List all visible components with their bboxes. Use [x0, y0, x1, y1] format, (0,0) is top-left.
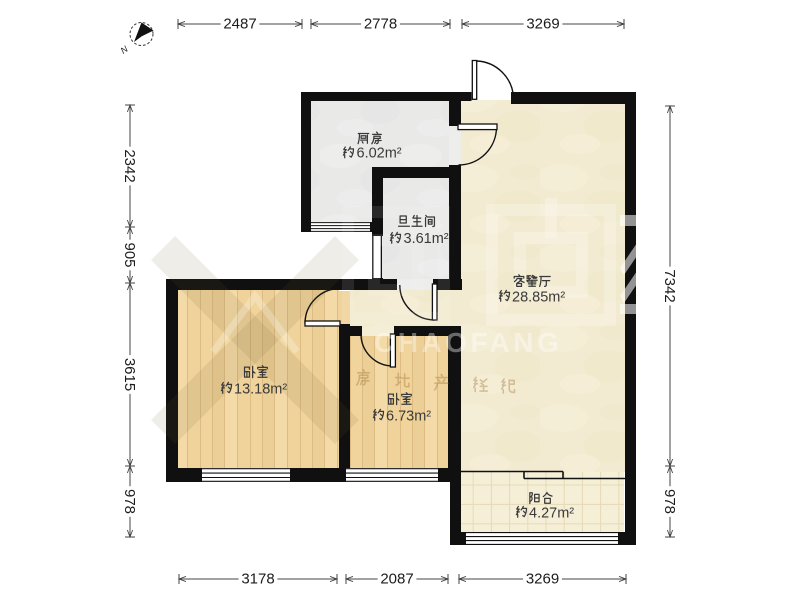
svg-text:905: 905: [121, 242, 138, 267]
svg-text:2087: 2087: [380, 571, 413, 588]
svg-text:2487: 2487: [223, 16, 256, 33]
svg-text:3178: 3178: [241, 571, 274, 588]
svg-text:3615: 3615: [121, 358, 138, 391]
svg-text:6.02m²: 6.02m²: [357, 146, 402, 162]
svg-text:4.27m²: 4.27m²: [529, 506, 574, 522]
svg-text:CHAOFANG: CHAOFANG: [374, 327, 562, 358]
svg-text:978: 978: [661, 489, 678, 514]
svg-text:978: 978: [121, 489, 138, 514]
svg-text:3.61m²: 3.61m²: [404, 231, 449, 247]
svg-text:13.18m²: 13.18m²: [234, 382, 287, 398]
svg-text:2342: 2342: [121, 149, 138, 182]
svg-text:3269: 3269: [526, 571, 559, 588]
svg-text:7342: 7342: [661, 269, 678, 302]
svg-text:3269: 3269: [526, 16, 559, 33]
svg-text:6.73m²: 6.73m²: [386, 409, 431, 425]
svg-text:2778: 2778: [364, 16, 397, 33]
svg-text:28.85m²: 28.85m²: [512, 290, 565, 306]
